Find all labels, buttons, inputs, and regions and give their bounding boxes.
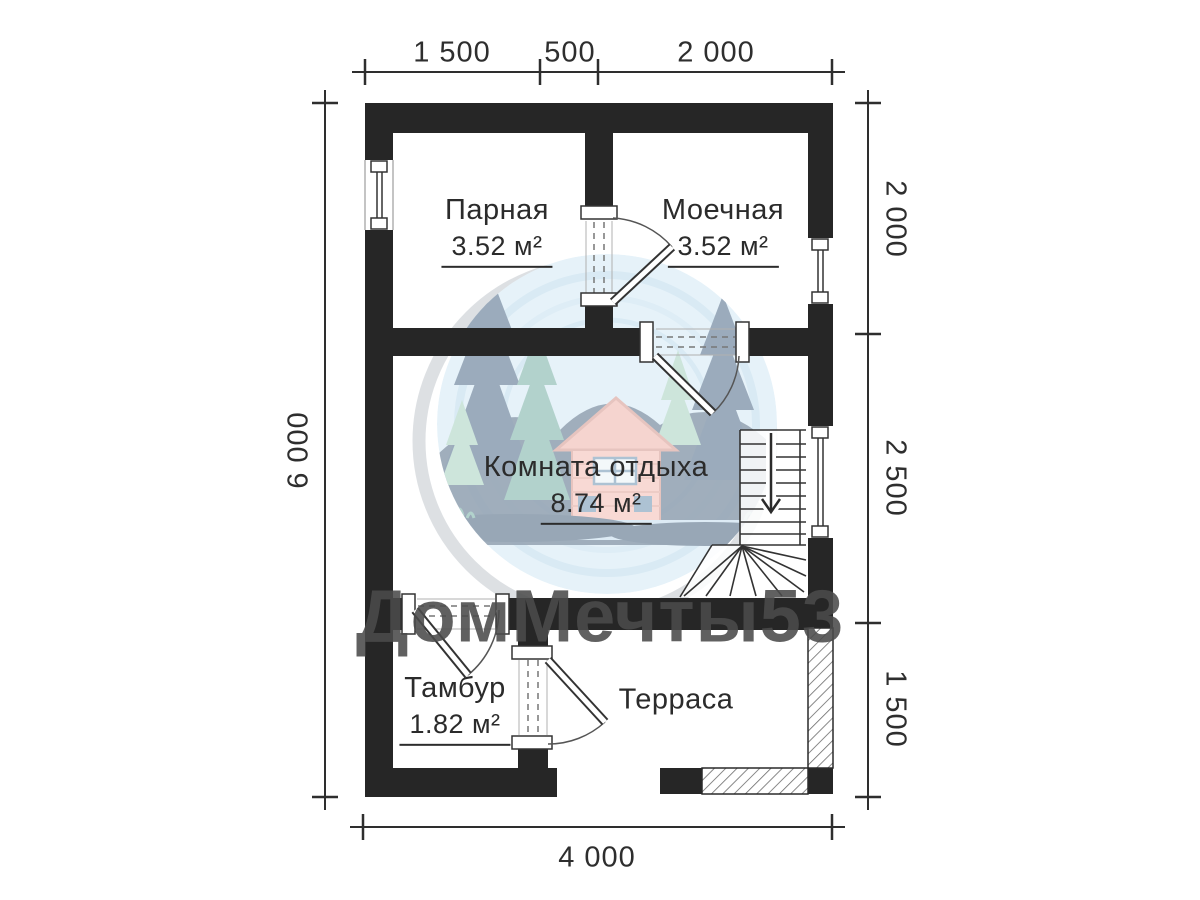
watermark-text: ДомМечты53 [356,574,844,659]
room-label-parnaya: Парная 3.52 м² [441,194,552,268]
dim-right-2000: 2 000 [879,180,912,258]
room-name: Терраса [619,683,734,716]
room-name: Тамбур [399,672,510,705]
dim-top-2000: 2 000 [677,37,755,70]
dim-top-500: 500 [544,37,595,70]
room-label-terrasa: Терраса [619,683,734,716]
room-area: 3.52 м² [667,230,778,268]
room-label-komnata-otdyha: Комната отдыха 8.74 м² [484,451,709,525]
floor-plan-page: 1 500 500 2 000 4 000 6 000 2 000 2 500 … [0,0,1200,900]
room-name: Моечная [662,194,784,227]
room-area: 1.82 м² [399,708,510,746]
room-label-moechnaya: Моечная 3.52 м² [662,194,784,268]
room-name: Комната отдыха [484,451,709,484]
room-label-tambur: Тамбур 1.82 м² [399,672,510,746]
dim-right-1500: 1 500 [879,670,912,748]
dim-top-1500: 1 500 [413,37,491,70]
dim-bottom-4000: 4 000 [558,842,636,875]
room-area: 3.52 м² [441,230,552,268]
dim-left-6000: 6 000 [283,411,316,489]
dim-right-2500: 2 500 [879,439,912,517]
room-area: 8.74 м² [540,487,651,525]
room-name: Парная [441,194,552,227]
